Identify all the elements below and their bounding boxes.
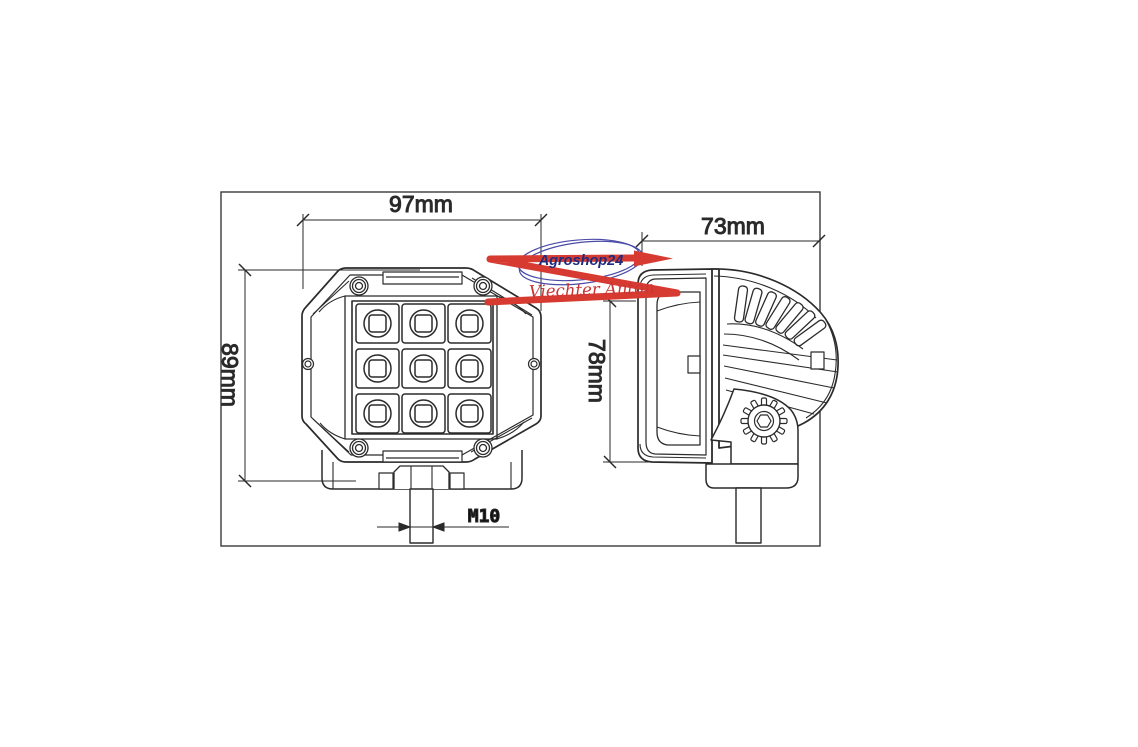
thread-arrow-right	[433, 523, 444, 531]
front-bottom-window	[383, 451, 462, 462]
watermark: Agroshop24 Viechter Anton	[488, 235, 677, 302]
side-lens-block	[638, 269, 719, 463]
dim-label-side-depth: 73mm	[701, 213, 765, 239]
front-top-window	[383, 272, 462, 284]
watermark-shop-name: Agroshop24	[538, 253, 624, 269]
thread-arrow-left	[399, 523, 410, 531]
dim-label-side-height: 78mm	[584, 339, 610, 403]
dim-label-thread: M10	[468, 506, 501, 527]
front-bolt-shaft	[410, 489, 433, 543]
dimension-thread: M10	[377, 506, 509, 531]
lens-latch	[688, 356, 700, 373]
red-arrowhead	[634, 251, 673, 267]
dim-label-front-width: 97mm	[389, 191, 453, 217]
technical-drawing-page: 97mm 89mm 73mm 78mm M10	[0, 0, 1138, 747]
front-view	[302, 268, 541, 543]
dim-label-front-height: 89mm	[217, 343, 243, 407]
side-view	[638, 269, 838, 543]
shell-clip	[811, 352, 824, 369]
front-mounting-bracket	[322, 450, 522, 543]
pivot-hex-socket	[757, 415, 771, 427]
side-bolt-shaft	[736, 488, 761, 543]
led-worklight-dimension-drawing: 97mm 89mm 73mm 78mm M10	[0, 0, 1138, 747]
